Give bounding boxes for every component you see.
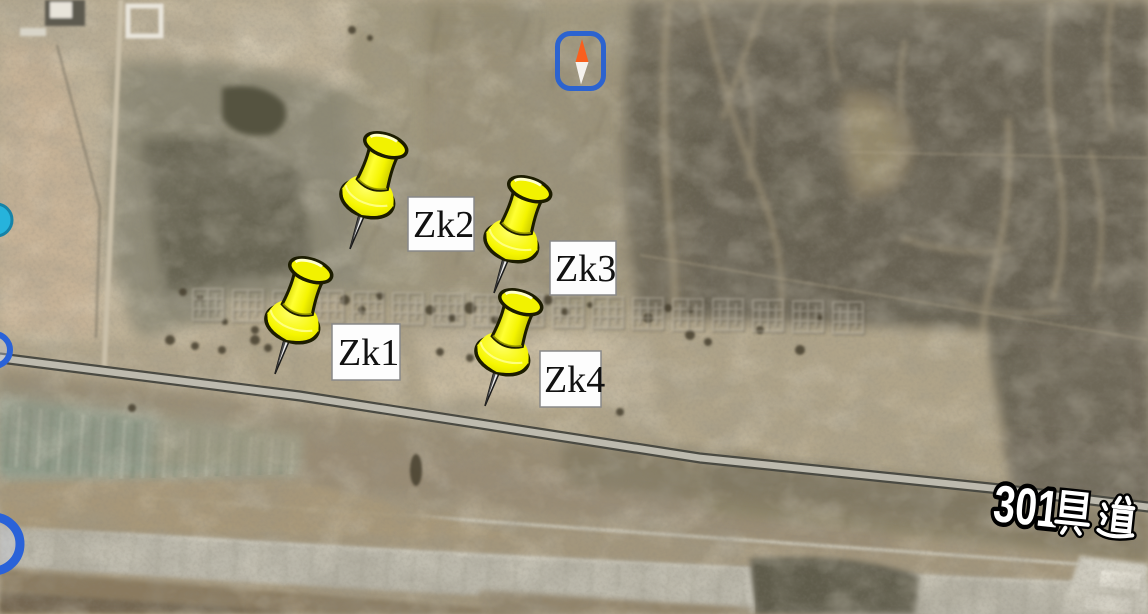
svg-text:Zk2: Zk2: [413, 204, 474, 246]
svg-text:Zk4: Zk4: [544, 359, 605, 401]
svg-text:301: 301: [991, 474, 1062, 539]
svg-text:Zk3: Zk3: [555, 248, 616, 290]
svg-text:Zk1: Zk1: [338, 332, 399, 374]
